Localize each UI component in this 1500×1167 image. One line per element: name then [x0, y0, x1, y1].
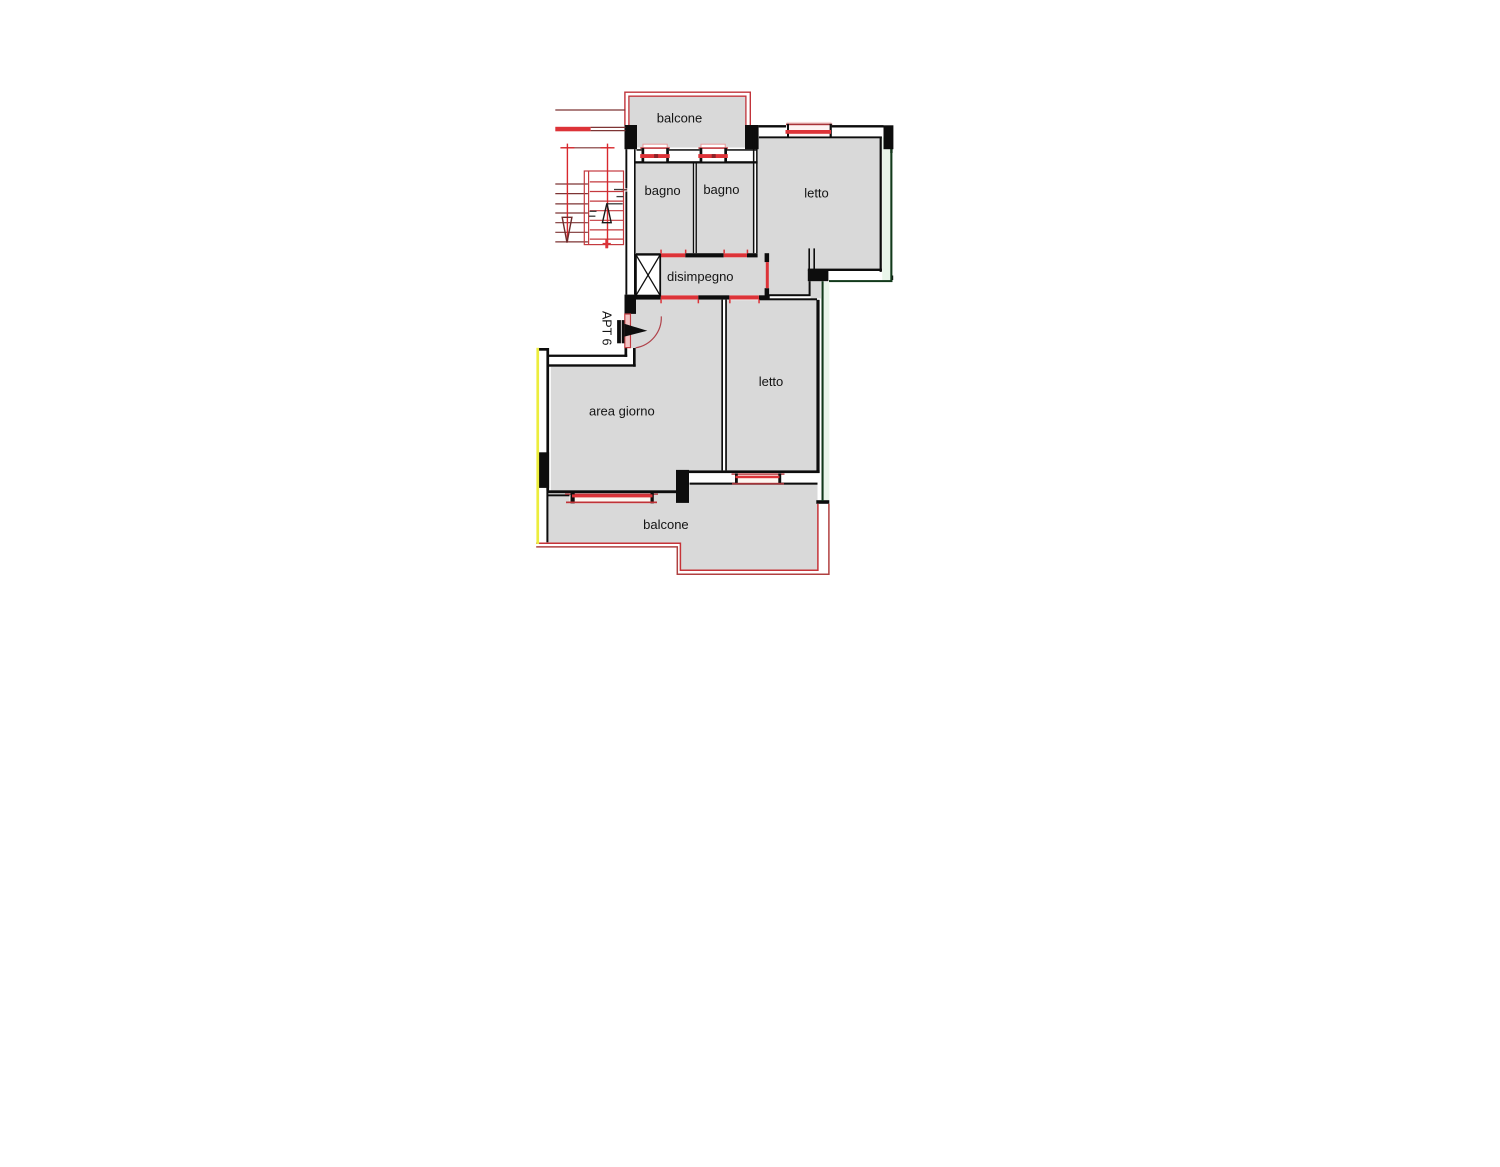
svg-text:area giorno: area giorno	[589, 403, 655, 418]
svg-text:letto: letto	[759, 374, 784, 389]
svg-text:balcone: balcone	[643, 517, 689, 532]
svg-text:bagno: bagno	[703, 182, 739, 197]
svg-text:letto: letto	[804, 185, 829, 200]
svg-text:balcone: balcone	[657, 111, 703, 126]
svg-text:bagno: bagno	[645, 183, 681, 198]
svg-text:APT 6: APT 6	[600, 311, 614, 346]
svg-text:disimpegno: disimpegno	[667, 269, 734, 284]
